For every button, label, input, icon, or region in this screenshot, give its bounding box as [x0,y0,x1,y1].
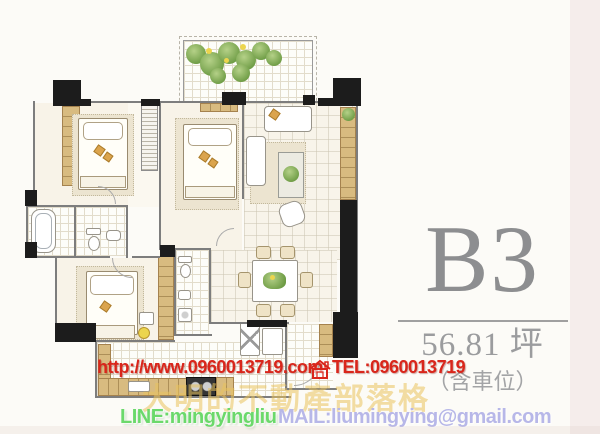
toilet2-tank [178,256,192,263]
column [333,78,361,106]
wall [174,250,176,336]
wall-segment [247,320,287,327]
wall-segment [303,95,315,105]
wall [95,340,175,342]
balcony-flower-icon [240,44,246,50]
dining-chair [280,304,295,317]
bedroom2-pillow [188,128,232,146]
tv-cabinet-plant-icon [342,108,355,121]
column [53,80,81,106]
balcony-flower-icon [206,48,212,54]
column [340,200,357,317]
master-bed-bench [95,325,135,339]
toilet1-bowl [88,236,100,251]
house-icon [307,358,333,382]
wall [159,101,161,248]
bedroom2-bed-foot [185,186,235,198]
column [333,312,358,358]
wall-segment [80,99,91,106]
dining-chair [300,272,313,288]
wall [78,101,338,103]
bedroom1-pillow [83,122,123,140]
wall [55,256,57,325]
wall [57,256,110,258]
wall-segment [55,323,96,342]
dining-flower-icon [270,275,275,280]
balcony-plant-icon [210,68,226,84]
wall-segment [141,99,160,106]
dining-chair [256,304,271,317]
toilet2-bowl [180,264,191,278]
entry-side-cabinet [319,324,333,357]
shoe-cabinet [240,322,260,356]
hall-closet [141,105,158,171]
master-lamp-icon [138,327,150,339]
wall [126,205,128,258]
dining-chair [256,246,271,259]
wall [132,256,160,258]
dining-chair [238,272,251,288]
balcony-plant-icon [232,64,250,82]
bath2-sink [178,290,191,300]
wall-segment [25,190,37,206]
watermark-tel: TEL:0960013719 [332,357,465,378]
wall-segment [222,92,246,105]
toilet1-tank [86,228,101,235]
entry-cabinet [262,328,283,355]
master-wardrobe [158,256,174,340]
wall [174,334,212,336]
bathtub-inner [35,213,52,249]
living-side-chair [246,136,266,186]
dining-chair [280,246,295,259]
scan-edge-tint [570,0,600,434]
wall [28,205,128,207]
washer [178,308,192,322]
master-nightstand [139,312,154,325]
balcony-plant-icon [266,50,282,66]
unit-label: B3 [395,203,570,315]
wall [242,101,244,199]
wall-segment [160,245,175,257]
balcony-flower-icon [224,58,229,63]
wall [209,248,211,324]
master-pillow [90,275,134,295]
wall-segment [25,242,37,258]
divider-line [398,320,568,322]
wall [74,207,76,257]
dining-centerpiece-icon [263,272,286,289]
scan-edge-tint [0,426,600,434]
floorplan-page: B3 56.81 坪 （含車位） 大明的不動產部落格 http://www.09… [0,0,600,434]
watermark-url: http://www.0960013719.com [97,357,323,378]
bath1-sink [106,230,121,241]
living-table-plant-icon [283,166,299,182]
wall-segment [318,98,334,106]
